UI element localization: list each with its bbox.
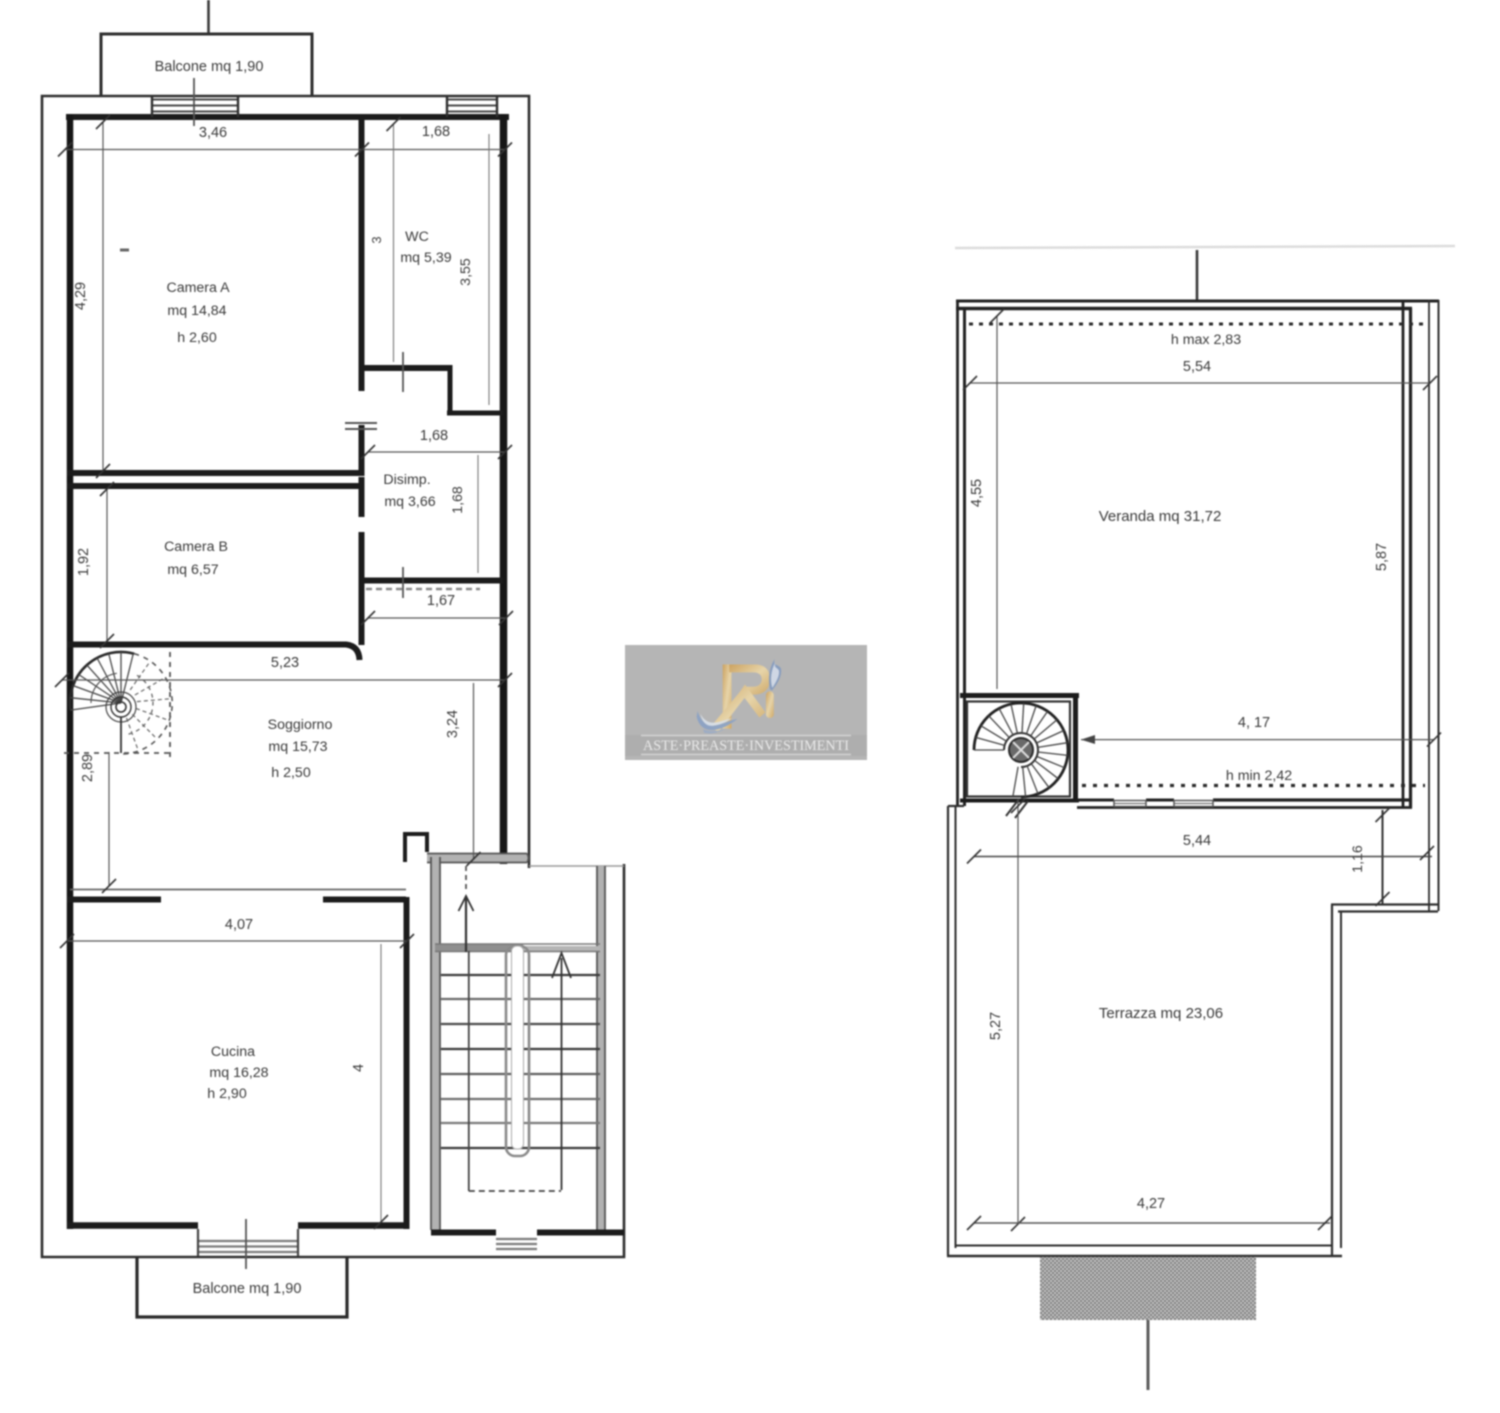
svg-text:mq 6,57: mq 6,57 xyxy=(167,562,218,578)
svg-text:3,55: 3,55 xyxy=(458,258,474,286)
svg-text:1,68: 1,68 xyxy=(450,486,466,514)
svg-text:ASTE·PREASTE·INVESTIMENTI: ASTE·PREASTE·INVESTIMENTI xyxy=(643,738,849,754)
svg-text:4, 17: 4, 17 xyxy=(1238,715,1270,731)
svg-text:5,54: 5,54 xyxy=(1183,359,1211,375)
svg-text:4,07: 4,07 xyxy=(225,917,253,933)
svg-text:mq 5,39: mq 5,39 xyxy=(400,250,451,266)
svg-text:5,44: 5,44 xyxy=(1183,833,1211,849)
svg-text:4,29: 4,29 xyxy=(73,282,89,310)
svg-text:Soggiorno: Soggiorno xyxy=(268,717,333,733)
svg-text:3: 3 xyxy=(369,236,384,243)
svg-text:Balcone mq 1,90: Balcone mq 1,90 xyxy=(155,59,264,75)
svg-text:h 2,60: h 2,60 xyxy=(177,330,217,346)
svg-text:1,92: 1,92 xyxy=(76,548,92,576)
svg-text:5,23: 5,23 xyxy=(271,655,299,671)
svg-text:h max 2,83: h max 2,83 xyxy=(1171,332,1241,348)
svg-text:mq 15,73: mq 15,73 xyxy=(268,739,327,755)
svg-text:5,87: 5,87 xyxy=(1374,543,1390,571)
svg-text:Camera B: Camera B xyxy=(164,539,228,555)
svg-text:4,27: 4,27 xyxy=(1137,1196,1165,1212)
svg-text:mq 3,66: mq 3,66 xyxy=(384,494,435,510)
svg-text:mq 16,28: mq 16,28 xyxy=(209,1065,268,1081)
svg-text:Camera A: Camera A xyxy=(166,280,230,296)
svg-text:4,55: 4,55 xyxy=(969,479,985,507)
svg-text:mq 14,84: mq 14,84 xyxy=(167,303,226,319)
svg-text:h 2,90: h 2,90 xyxy=(207,1086,247,1102)
svg-text:Balcone mq 1,90: Balcone mq 1,90 xyxy=(193,1281,302,1297)
svg-text:h min 2,42: h min 2,42 xyxy=(1226,768,1292,784)
svg-text:1,68: 1,68 xyxy=(420,428,448,444)
svg-text:2,89: 2,89 xyxy=(80,754,96,782)
svg-text:4: 4 xyxy=(351,1064,367,1072)
svg-text:Terrazza mq 23,06: Terrazza mq 23,06 xyxy=(1099,1005,1223,1022)
svg-text:Veranda mq 31,72: Veranda mq 31,72 xyxy=(1099,508,1222,525)
svg-text:1,67: 1,67 xyxy=(427,593,455,609)
svg-text:5,27: 5,27 xyxy=(988,1012,1004,1040)
svg-text:Cucina: Cucina xyxy=(211,1044,255,1060)
svg-text:3,46: 3,46 xyxy=(199,125,227,141)
svg-text:Disimp.: Disimp. xyxy=(383,472,430,488)
svg-text:h 2,50: h 2,50 xyxy=(271,765,311,781)
svg-text:1,68: 1,68 xyxy=(422,124,450,140)
svg-text:1,16: 1,16 xyxy=(1350,845,1366,873)
svg-text:WC: WC xyxy=(405,229,429,245)
svg-text:3,24: 3,24 xyxy=(445,710,461,738)
